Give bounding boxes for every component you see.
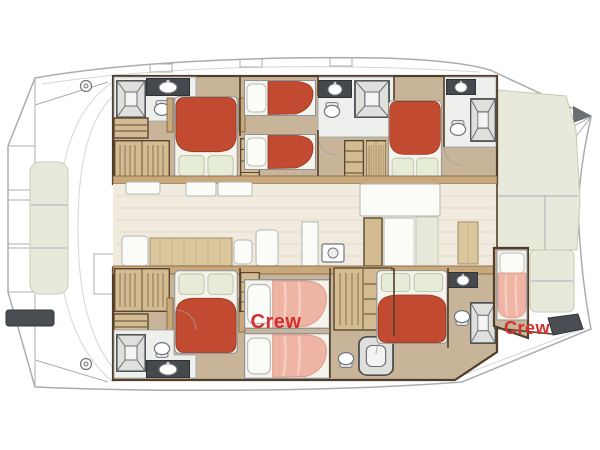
shower-icon: [471, 99, 496, 141]
galley-cabinet: [364, 218, 382, 266]
sink-icon: [318, 80, 351, 97]
shower-icon: [471, 303, 496, 343]
sink-icon: [446, 79, 475, 94]
toilet-icon: [454, 311, 469, 326]
nav-desk: [458, 222, 478, 264]
settee: [256, 230, 278, 266]
floor-plan-drawing: Crew Crew: [0, 0, 600, 450]
settee: [122, 236, 148, 266]
fridge: [384, 218, 414, 266]
aft-bench-cushion: [30, 162, 68, 294]
stern-grill: [6, 310, 54, 326]
toilet-icon: [324, 103, 339, 118]
wardrobe-icon: [115, 269, 170, 312]
double-bed-aft-port: [175, 97, 237, 179]
crew-label-forepeak: Crew: [504, 318, 551, 338]
crew-label-mid: Crew: [251, 311, 302, 333]
floor-plan-canvas: Crew Crew: [0, 0, 600, 450]
port-hull-cabins: [113, 76, 497, 184]
shelf-unit: [114, 118, 148, 138]
sink-icon: [448, 272, 477, 287]
galley-counter: [360, 184, 440, 216]
sink-icon: [147, 78, 190, 95]
dining-table: [150, 238, 232, 266]
saloon: [113, 182, 497, 266]
winch-icon: [81, 81, 92, 92]
settee: [234, 240, 252, 264]
mast-post: [302, 222, 318, 266]
galley-sink-icon: [322, 244, 344, 262]
galley-unit: [416, 217, 438, 266]
shower-icon: [117, 335, 145, 371]
shower-icon: [117, 81, 145, 117]
single-bed-mid-port-2: [245, 135, 316, 170]
crew-berth-mid-2: [245, 334, 330, 379]
crew-berth-forepeak: [498, 273, 526, 318]
toilet-icon: [450, 121, 465, 136]
toilet-icon: [338, 353, 353, 368]
sink-icon: [147, 360, 190, 377]
toilet-icon: [154, 343, 169, 358]
single-bed-mid-port-1: [245, 81, 316, 116]
double-bed-fwd-port: [389, 101, 442, 181]
winch-icon: [81, 359, 92, 370]
shower-icon: [355, 81, 389, 117]
port-walkway: [113, 176, 497, 184]
double-bed-fwd-starboard: [377, 271, 447, 344]
